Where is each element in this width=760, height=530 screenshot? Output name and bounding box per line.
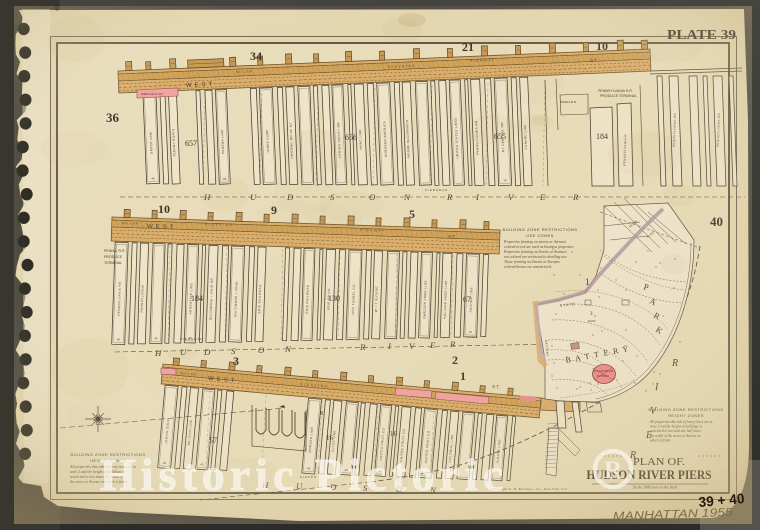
svg-text:Historic Pictoric: Historic Pictoric bbox=[100, 449, 508, 500]
svg-text:R: R bbox=[604, 457, 623, 484]
